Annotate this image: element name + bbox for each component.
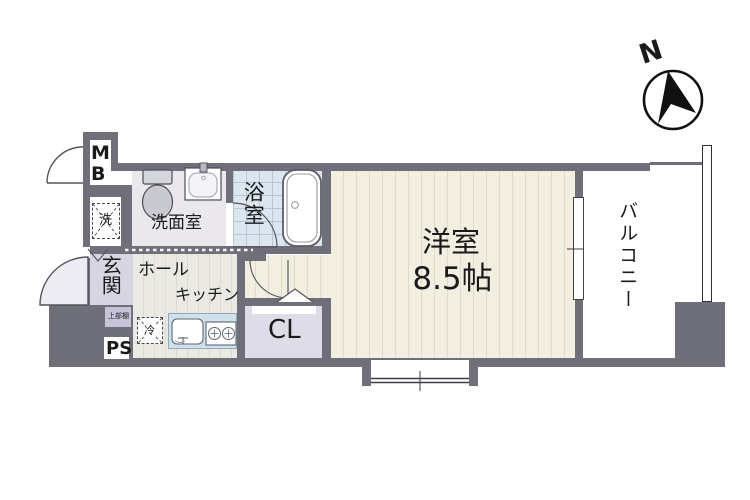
wash-basin <box>185 163 221 200</box>
balcony-label: バルコニー <box>617 201 637 311</box>
western-room-label: 洋室 <box>390 227 512 258</box>
mb-door-swing <box>47 147 83 183</box>
north-compass-icon <box>644 71 702 129</box>
bathroom-label: 浴室 <box>242 181 264 227</box>
entrance-label: 玄関 <box>99 255 120 295</box>
stove <box>206 322 236 345</box>
upper-shelf-label: 上部棚 <box>106 313 131 320</box>
meter-box-label: MB <box>91 143 108 184</box>
washroom-label: 洗面室 <box>151 214 202 232</box>
hall-label: ホール <box>138 261 189 279</box>
washing-machine-label: 洗 <box>99 214 112 228</box>
bathtub <box>283 170 321 246</box>
closet-label: CL <box>268 317 301 345</box>
refrigerator-label: 冷 <box>143 325 156 337</box>
pipe-space-label: PS <box>106 339 132 358</box>
kitchen-label: キッチン <box>175 287 239 304</box>
kitchen-sink <box>172 319 203 344</box>
closet-folding-door <box>277 289 313 302</box>
floorplan-canvas: MB 洗 洗面室 浴室 玄関 ホール キッチン 冷 上部棚 PS CL 洋室 8… <box>0 0 750 500</box>
toilet <box>143 170 173 219</box>
room-door-swing <box>250 260 288 298</box>
entrance-door-swing <box>40 257 88 305</box>
western-room-size-label: 8.5帖 <box>390 263 515 296</box>
bay-window-glazing <box>371 371 469 391</box>
